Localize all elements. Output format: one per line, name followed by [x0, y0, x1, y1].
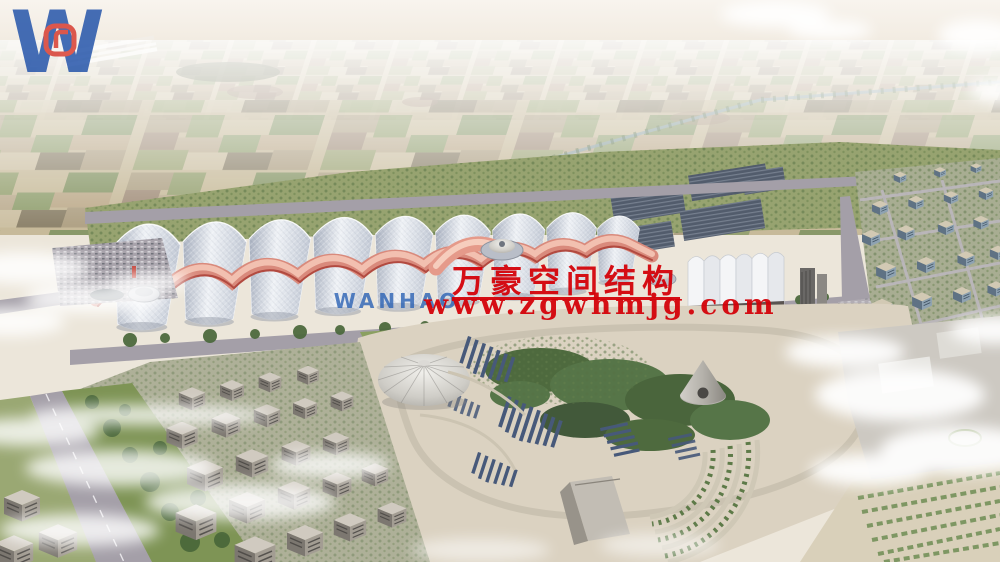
website-watermark: www.zgwhmjg.com — [424, 288, 744, 321]
aerial-rendering: W WANHAO 万豪空间结构 www.zgwhmjg.com — [0, 0, 1000, 562]
dome-tent — [378, 354, 470, 410]
wanhao-logo-icon: W — [0, 0, 140, 95]
